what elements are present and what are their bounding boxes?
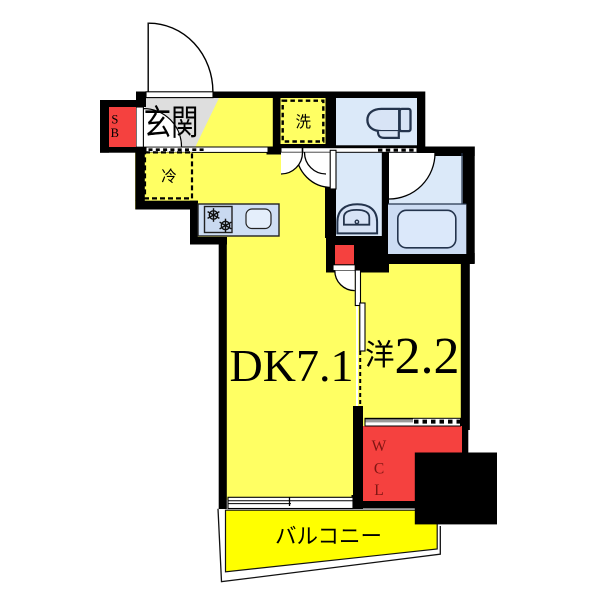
svg-text:S: S	[111, 113, 118, 127]
svg-text:L: L	[374, 482, 383, 499]
svg-text:B: B	[111, 126, 119, 140]
svg-text:DK7.1: DK7.1	[230, 340, 354, 391]
svg-text:W: W	[372, 438, 387, 455]
svg-text:玄関: 玄関	[144, 104, 199, 143]
svg-text:C: C	[374, 461, 384, 478]
svg-text:2.2: 2.2	[395, 328, 460, 385]
svg-text:洗: 洗	[296, 113, 312, 131]
svg-text:バルコニー: バルコニー	[275, 525, 382, 549]
svg-text:冷: 冷	[161, 168, 177, 186]
svg-text:洋: 洋	[365, 339, 395, 372]
